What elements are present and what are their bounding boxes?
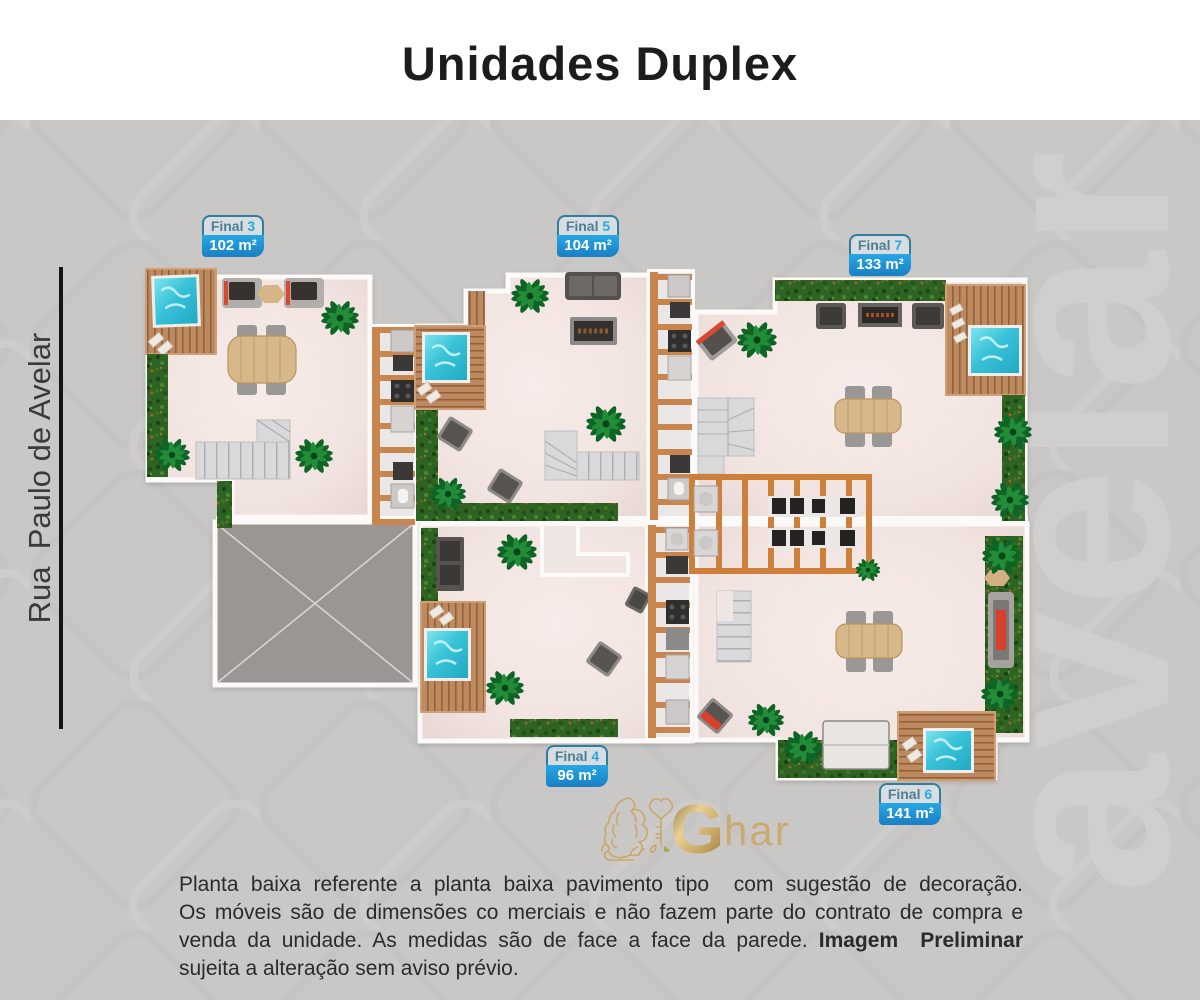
svg-text:G: G: [670, 790, 724, 868]
svg-text:har: har: [724, 807, 791, 854]
